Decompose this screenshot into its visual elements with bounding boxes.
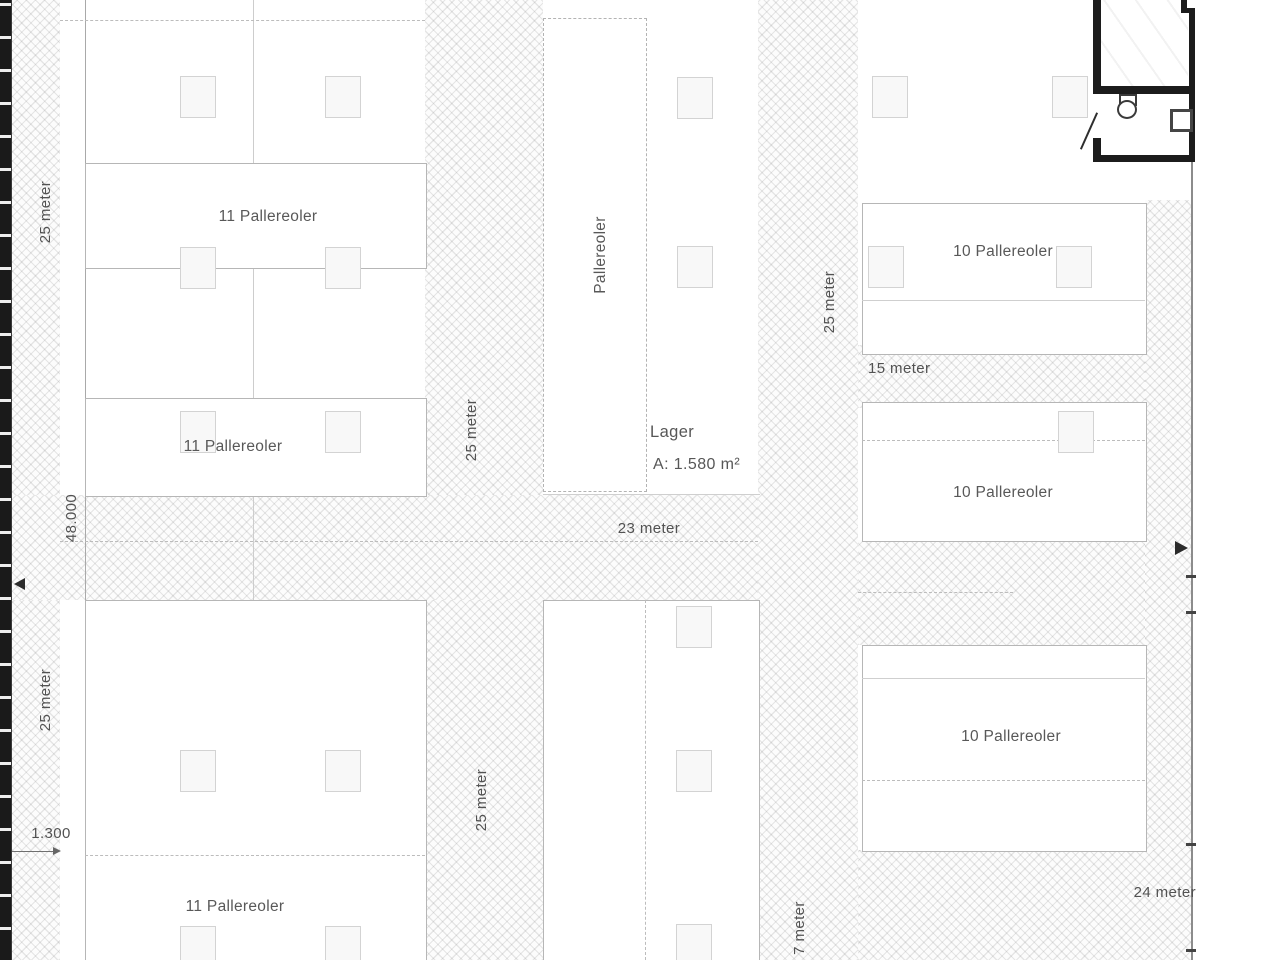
dim-bottom-aisle: 7 meter xyxy=(790,893,810,960)
column-marker xyxy=(1052,76,1088,118)
rack-block-label: 11 Pallereoler xyxy=(155,897,315,917)
column-marker xyxy=(1058,411,1094,453)
warehouse-floor-plan: 11 Pallereoler 11 Pallereoler 11 Pallere… xyxy=(0,0,1280,960)
lager-zone-bottom-line xyxy=(543,494,760,495)
room-name-label: Lager xyxy=(650,423,770,442)
dim-left-bay-bottom: 25 meter xyxy=(36,660,56,740)
aisle-hatch-right-edge xyxy=(1145,200,1192,850)
rack-block-middle-bottom-centerline xyxy=(645,600,646,960)
room-wall xyxy=(1101,155,1195,162)
rack-block-right-2 xyxy=(862,402,1147,542)
aisle-hatch-left-strip xyxy=(11,0,60,960)
cross-aisle-centerline-left xyxy=(60,541,758,542)
section-arrow-icon xyxy=(1175,541,1188,555)
dim-bottom-width: 24 meter xyxy=(1086,883,1196,903)
toilet-icon xyxy=(1116,93,1140,121)
column-marker xyxy=(677,77,713,119)
column-marker xyxy=(180,750,216,792)
rack-block-label: 11 Pallereoler xyxy=(153,437,313,457)
dim-cross-aisle: 23 meter xyxy=(604,519,694,539)
room-wall xyxy=(1189,8,1195,162)
dim-building-length: 48.000 xyxy=(62,483,82,553)
rack-block-right-1-divider xyxy=(862,300,1145,301)
column-marker xyxy=(325,247,361,289)
dim-right-bay-gap: 15 meter xyxy=(868,359,958,379)
dim-line-wall-offset xyxy=(8,851,58,852)
dim-tick-icon xyxy=(1186,575,1196,578)
column-marker xyxy=(325,411,361,453)
dim-tick-icon xyxy=(1186,611,1196,614)
rack-block-right-1 xyxy=(862,203,1147,355)
column-marker xyxy=(872,76,908,118)
rack-block-label: 11 Pallereoler xyxy=(188,207,348,227)
dim-left-bay-top: 25 meter xyxy=(36,172,56,252)
rack-block-middle-bottom xyxy=(543,600,760,960)
dim-center-aisle-bottom: 25 meter xyxy=(472,760,492,840)
column-marker xyxy=(676,606,712,648)
dim-arrow-icon xyxy=(53,847,61,855)
column-marker xyxy=(325,76,361,118)
aisle-hatch-right-strip xyxy=(758,0,858,960)
room-area-label: A: 1.580 m² xyxy=(653,456,793,474)
stair-room xyxy=(1101,0,1188,88)
room-wall xyxy=(1093,0,1101,88)
column-marker xyxy=(180,247,216,289)
building-wall-right xyxy=(1191,160,1193,960)
column-marker xyxy=(325,926,361,960)
column-marker xyxy=(325,750,361,792)
rack-block-right-2-divider xyxy=(862,440,1145,441)
aisle-hatch-cross-band xyxy=(11,495,758,600)
dim-tick-icon xyxy=(1186,949,1196,952)
aisle-hatch-bottom-band xyxy=(858,850,1192,960)
sink-icon xyxy=(1170,109,1193,132)
room-wall xyxy=(1093,86,1195,94)
column-marker xyxy=(677,246,713,288)
dim-center-aisle-top: 25 meter xyxy=(462,390,482,470)
room-wall-door-stub xyxy=(1093,138,1101,162)
column-marker xyxy=(180,926,216,960)
rack-block-right-3 xyxy=(862,645,1147,852)
dim-right-aisle: 25 meter xyxy=(820,262,840,342)
rack-block-label: 10 Pallereoler xyxy=(923,483,1083,503)
rack-block-label: Pallereoler xyxy=(591,200,611,310)
rack-block-right-3-divider2 xyxy=(862,780,1145,781)
column-marker xyxy=(676,924,712,960)
rack-block-label: 10 Pallereoler xyxy=(931,727,1091,747)
rack-block-right-3-divider xyxy=(862,678,1145,679)
dim-tick-icon xyxy=(1186,843,1196,846)
exterior-wall-left xyxy=(0,0,12,960)
rack-block-label: 10 Pallereoler xyxy=(923,242,1083,262)
cross-aisle-centerline-right xyxy=(858,592,1013,593)
section-arrow-icon xyxy=(14,578,25,590)
rack-block-left-3-divider xyxy=(85,855,425,856)
column-marker xyxy=(676,750,712,792)
column-marker xyxy=(180,76,216,118)
dim-wall-offset: 1.300 xyxy=(21,824,81,844)
rack-zone-top-dashed-line xyxy=(60,20,425,21)
column-marker xyxy=(868,246,904,288)
